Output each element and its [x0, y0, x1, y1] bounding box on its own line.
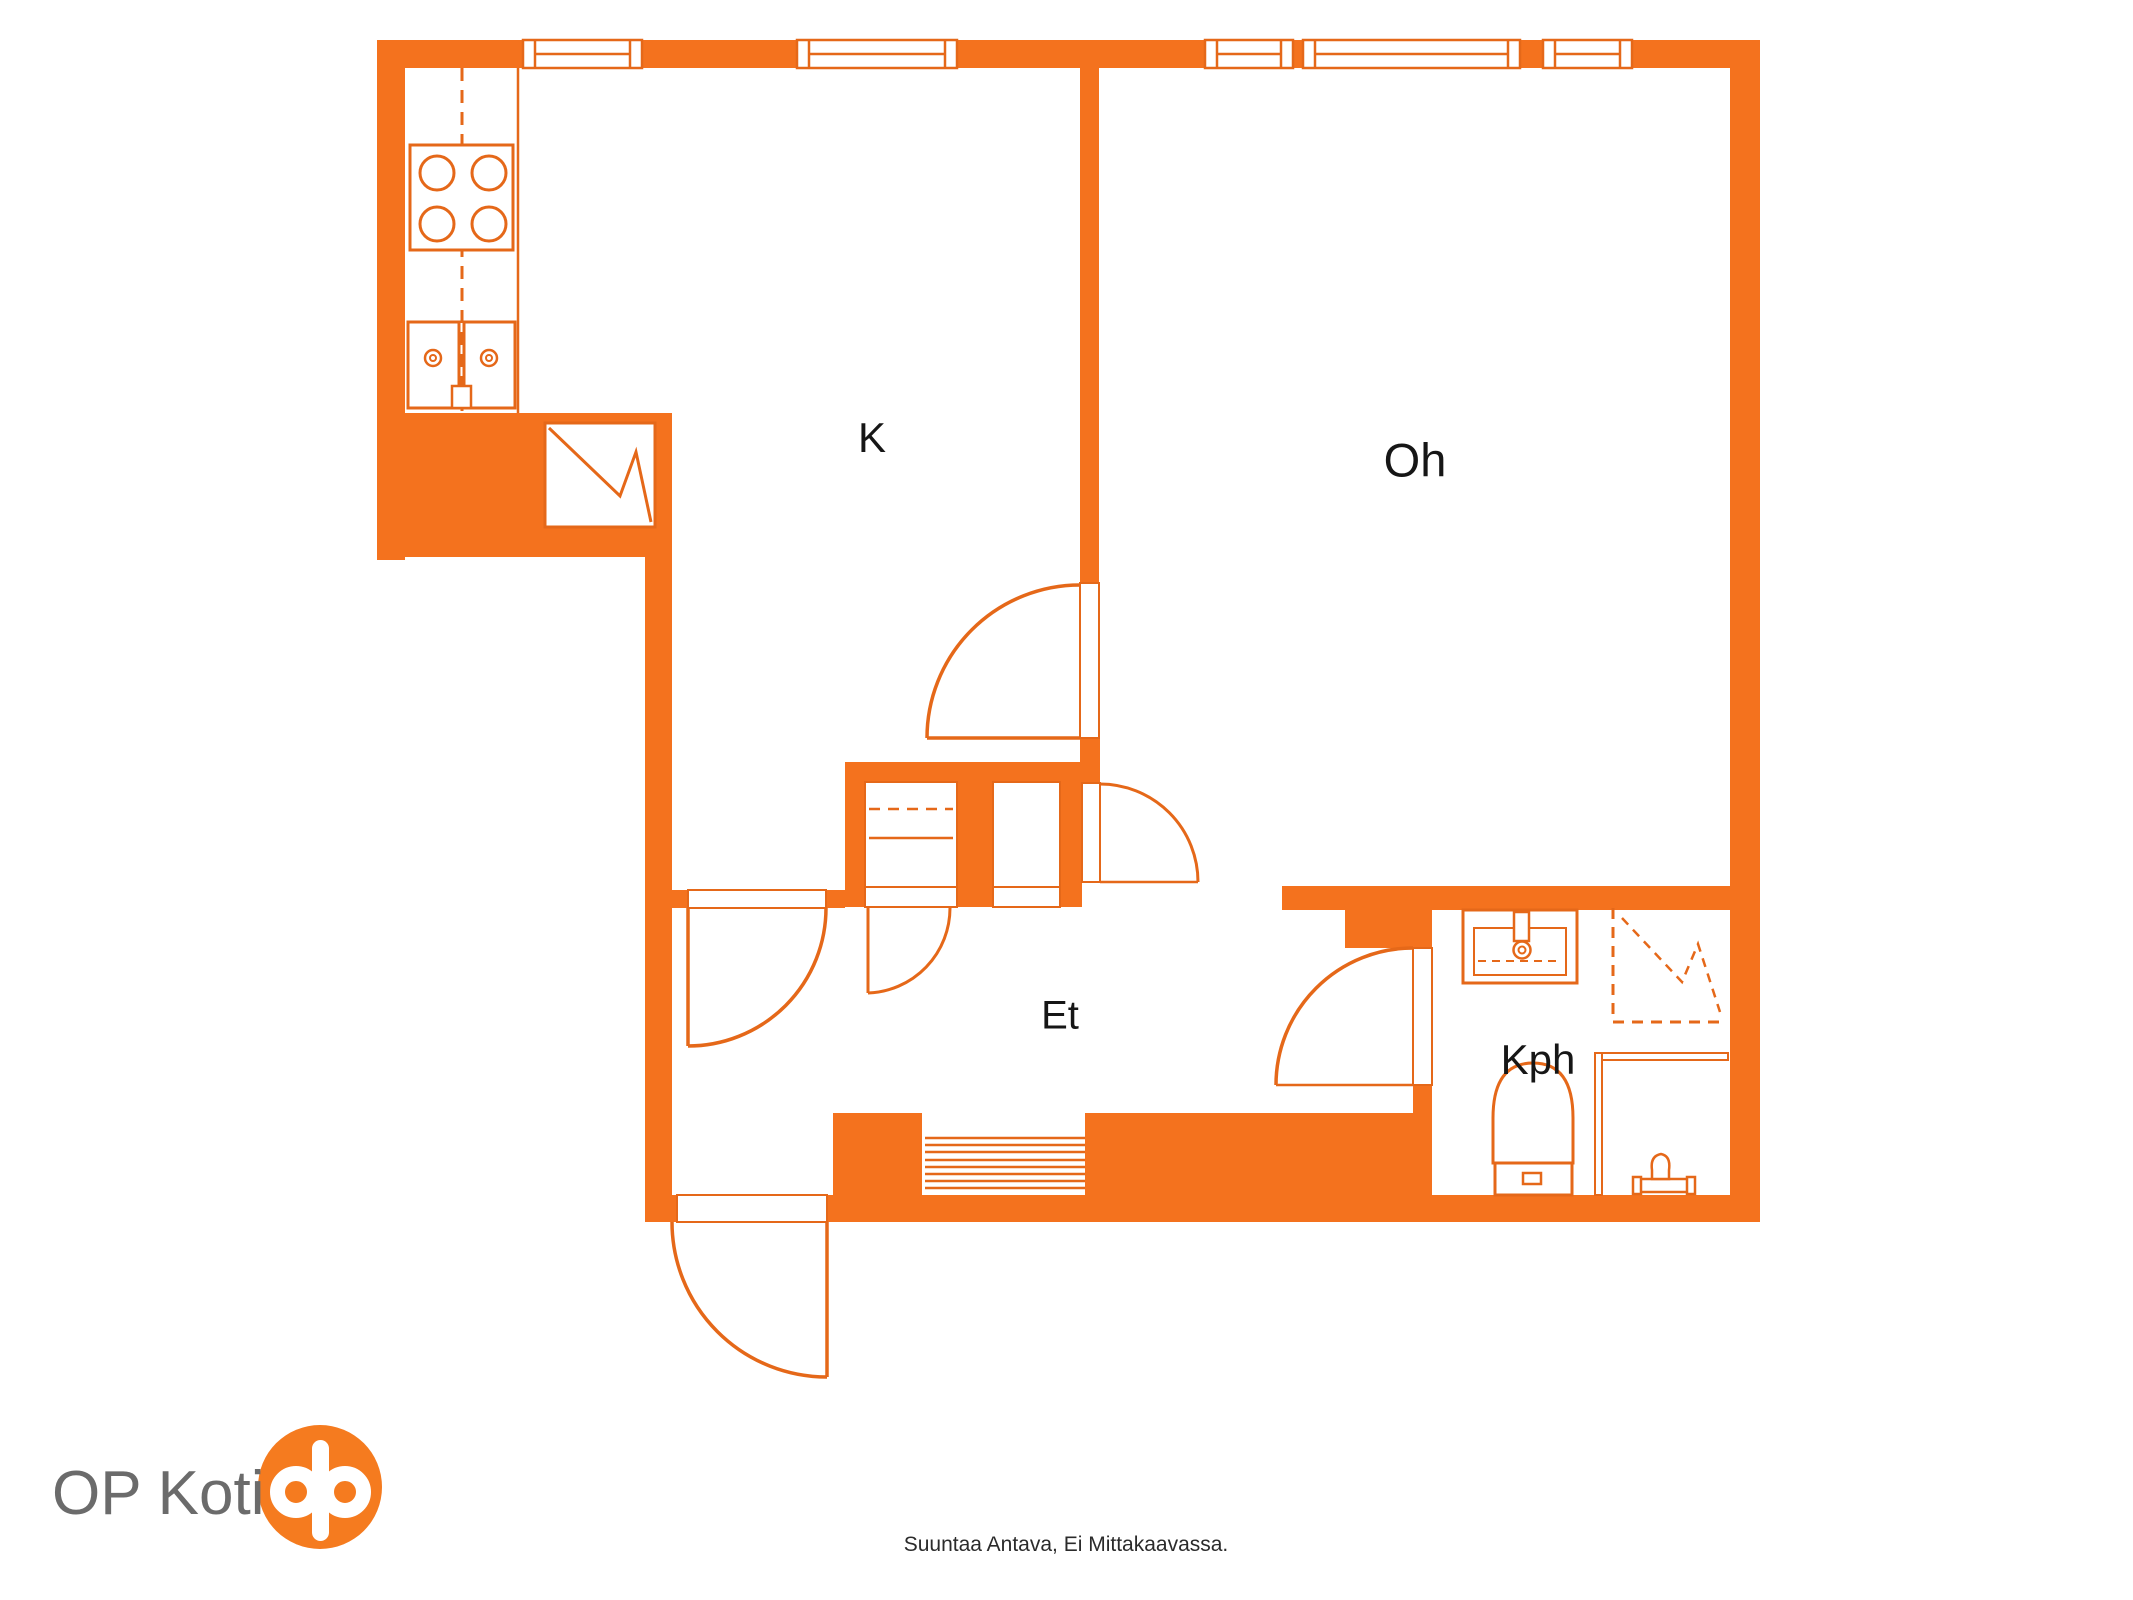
kitchen-hall-wall-b — [826, 890, 845, 908]
room-label-living-room: Oh — [1384, 433, 1447, 488]
entry-door — [672, 1222, 827, 1377]
kitchen-hall-door — [688, 908, 826, 1046]
disclaimer-text: Suuntaa Antava, Ei Mittakaavassa. — [904, 1533, 1229, 1557]
stair-block-right — [1085, 1113, 1432, 1222]
wardrobe-right-wall — [1060, 782, 1082, 887]
floor-drain-icon — [1633, 1154, 1695, 1194]
brand-wordmark: OP Koti — [52, 1458, 265, 1529]
right-wall — [1730, 40, 1760, 1222]
stair-block-left — [833, 1113, 922, 1222]
passage-door-leaf — [1082, 783, 1100, 882]
bottom-wall-left-stub — [645, 1195, 677, 1222]
kitchen-living-door — [927, 585, 1080, 738]
wardrobe-door — [868, 908, 950, 993]
wardrobe-bottom-c — [1060, 887, 1082, 907]
window-living-4 — [1543, 40, 1632, 68]
window-living-1 — [797, 40, 957, 68]
wardrobe-mid-wall — [957, 782, 993, 887]
wardrobe-compartment-1 — [865, 782, 957, 887]
hallway-west-wall — [645, 557, 672, 1222]
room-label-bathroom: Kph — [1501, 1036, 1576, 1084]
wardrobe-bottom-a — [845, 887, 865, 907]
window-living-3 — [1303, 40, 1520, 68]
living-south-wall — [1282, 886, 1730, 910]
wardrobe-opening-2 — [993, 887, 1060, 907]
stairs-icon — [925, 1138, 1085, 1188]
bathroom-doorway — [1413, 948, 1432, 1085]
window-kitchen — [523, 40, 642, 68]
window-living-2 — [1205, 40, 1293, 68]
kitchen-hall-doorway — [688, 890, 826, 908]
bathroom-door — [1276, 948, 1413, 1085]
washbasin-icon — [1463, 910, 1577, 983]
wardrobe-top-wall — [845, 762, 1100, 782]
floor-plan-drawing — [0, 0, 2133, 1600]
entry-doorway — [677, 1195, 827, 1222]
room-label-hallway: Et — [1041, 994, 1079, 1039]
room-label-kitchen: K — [858, 414, 886, 462]
doors — [672, 585, 1413, 1377]
kitchen-hall-wall-a — [670, 890, 688, 908]
wardrobe-compartment-2 — [993, 782, 1060, 887]
refrigerator-icon — [545, 423, 655, 527]
kitchen-living-doorway — [1080, 583, 1099, 738]
kitchen-living-divider-wall — [1080, 68, 1099, 583]
wardrobe-opening-1 — [865, 887, 957, 907]
op-logo-icon — [258, 1425, 382, 1549]
wardrobe-bottom-b — [957, 887, 993, 907]
bathroom-west-wall — [1413, 1085, 1432, 1195]
floor-plan-page: K Oh Et Kph OP Koti Suuntaa Antava, Ei M… — [0, 0, 2133, 1600]
stove-icon — [410, 145, 513, 250]
hall-living-passage-door — [1100, 784, 1198, 882]
shower-icon — [1613, 908, 1725, 1022]
bathroom-nw-block — [1345, 910, 1432, 948]
